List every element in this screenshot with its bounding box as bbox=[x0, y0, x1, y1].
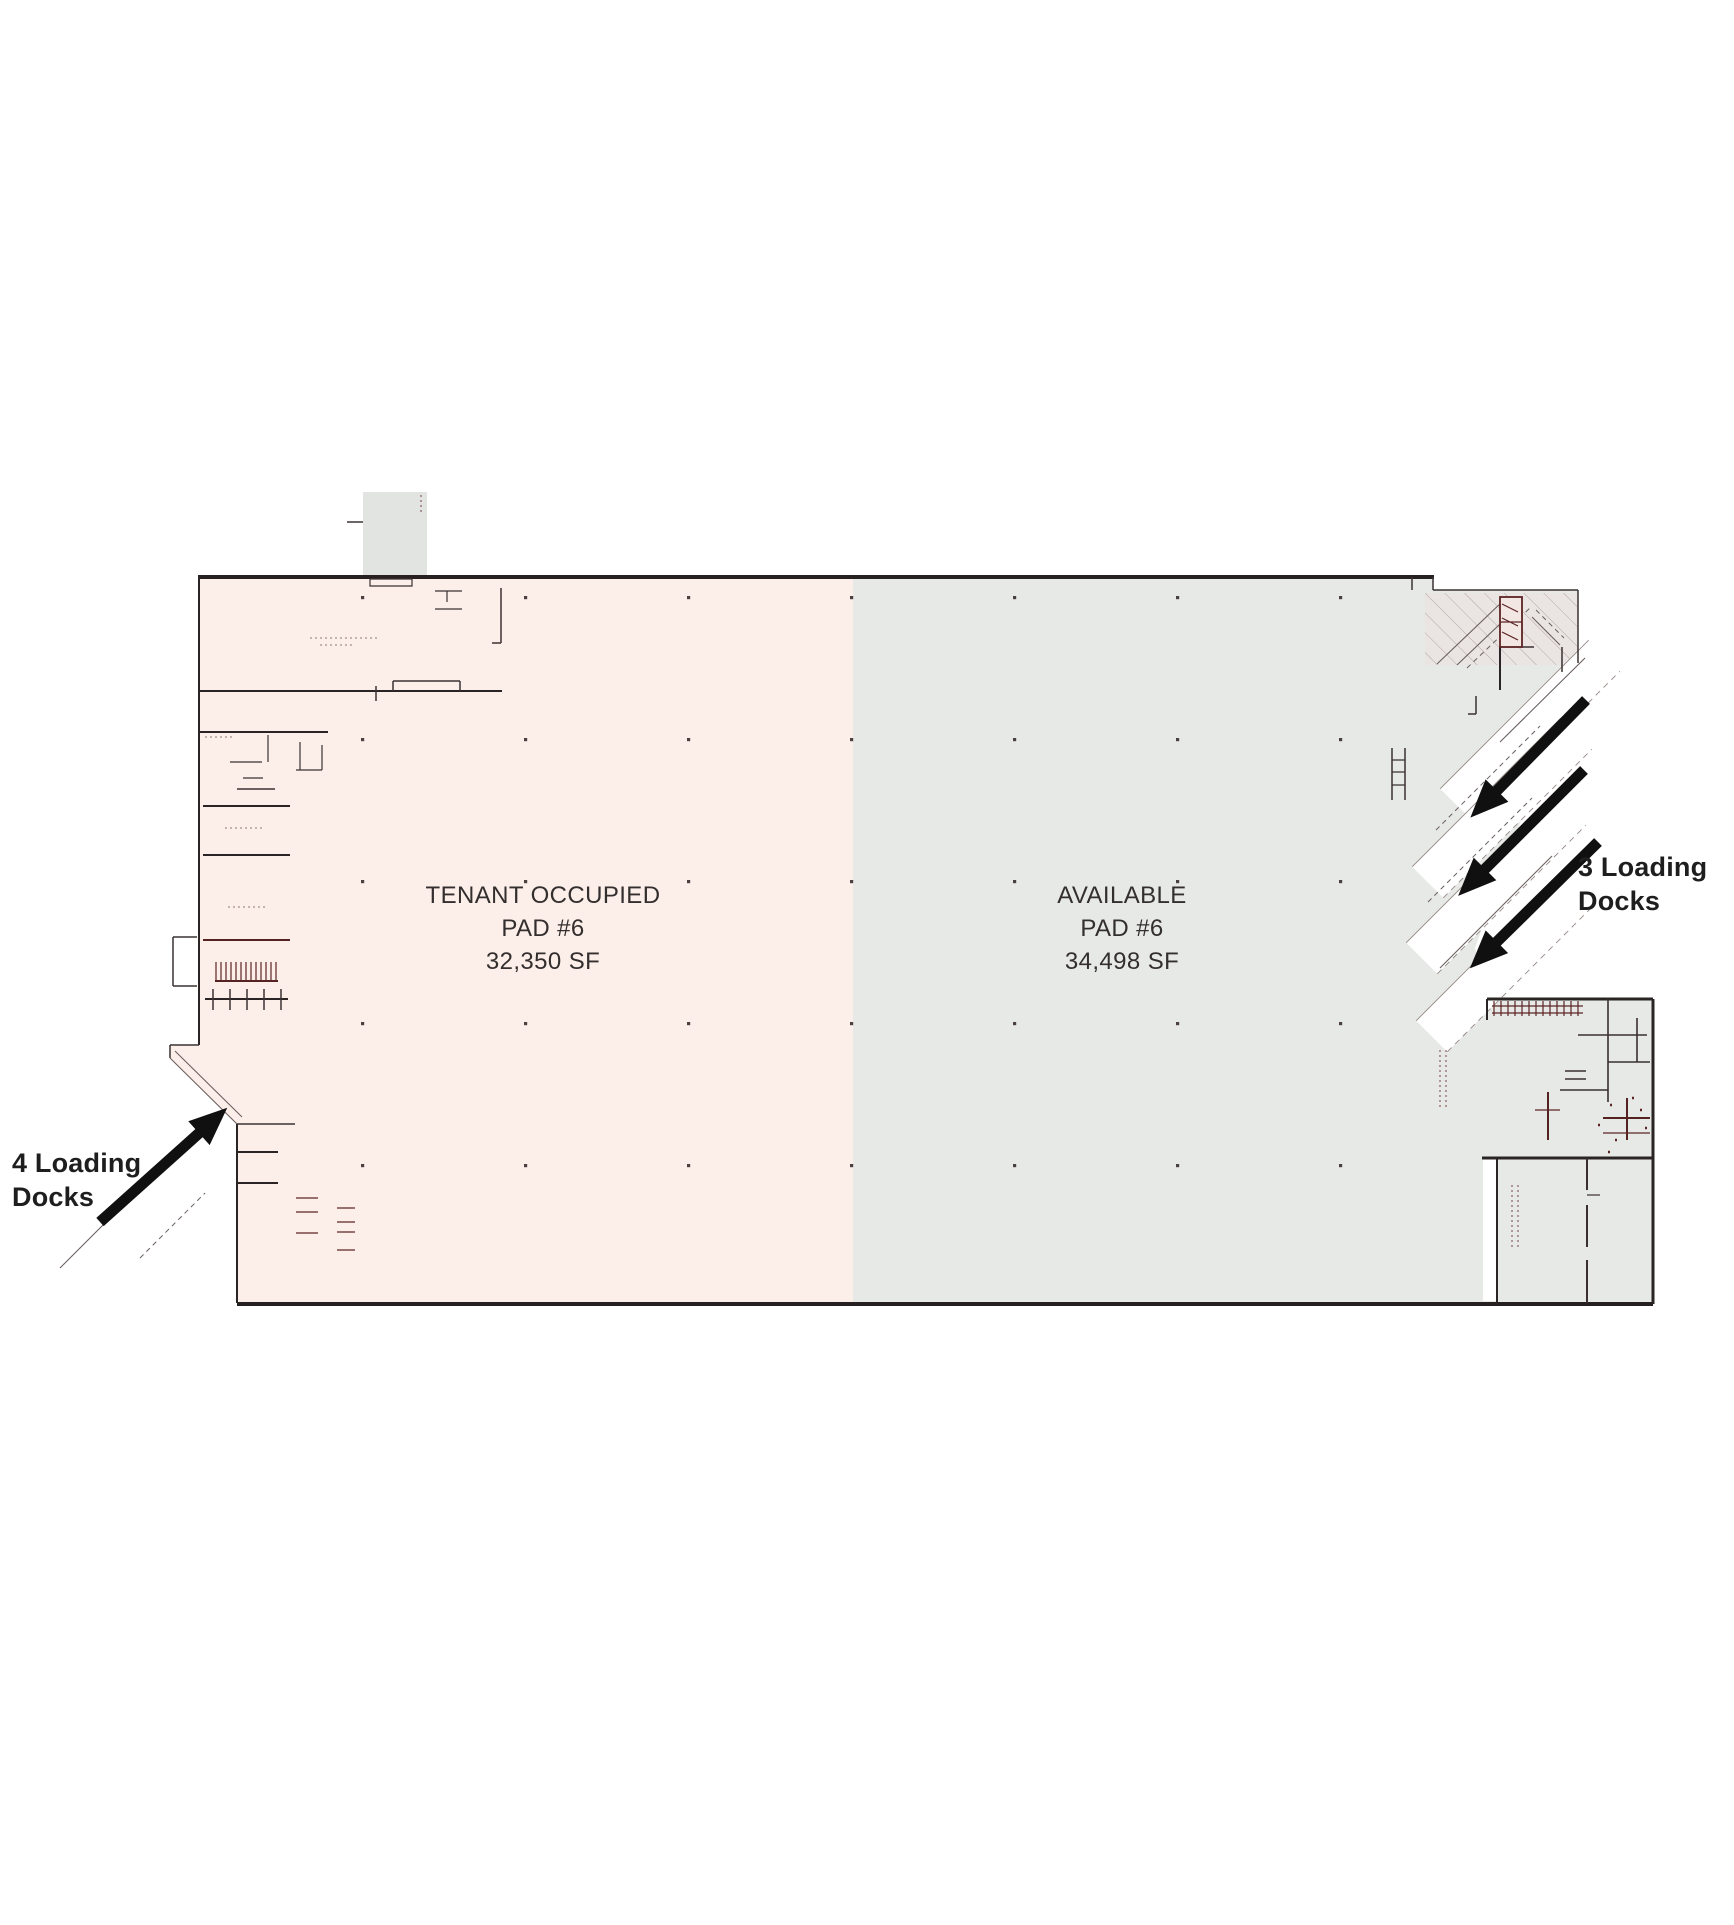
tenant-pad-name: PAD #6 bbox=[383, 912, 703, 945]
right-docks-callout: 3 Loading Docks bbox=[1578, 850, 1734, 918]
floor-plan-canvas: TENANT OCCUPIED PAD #6 32,350 SF AVAILAB… bbox=[0, 0, 1734, 1925]
available-pad-status: AVAILABLE bbox=[962, 879, 1282, 912]
left-docks-callout: 4 Loading Docks bbox=[12, 1146, 182, 1214]
left-docks-line2: Docks bbox=[12, 1180, 182, 1214]
available-pad-area: 34,498 SF bbox=[962, 945, 1282, 978]
left-docks-line1: 4 Loading bbox=[12, 1146, 182, 1180]
tenant-pad-label: TENANT OCCUPIED PAD #6 32,350 SF bbox=[383, 879, 703, 978]
floor-plan-svg bbox=[0, 0, 1734, 1925]
available-pad-label: AVAILABLE PAD #6 34,498 SF bbox=[962, 879, 1282, 978]
rooftop-unit bbox=[363, 492, 427, 578]
right-docks-line1: 3 Loading bbox=[1578, 850, 1734, 884]
tenant-pad-area: 32,350 SF bbox=[383, 945, 703, 978]
available-pad-name: PAD #6 bbox=[962, 912, 1282, 945]
tenant-pad-status: TENANT OCCUPIED bbox=[383, 879, 703, 912]
wall-gap bbox=[1483, 1159, 1496, 1301]
right-docks-line2: Docks bbox=[1578, 884, 1734, 918]
